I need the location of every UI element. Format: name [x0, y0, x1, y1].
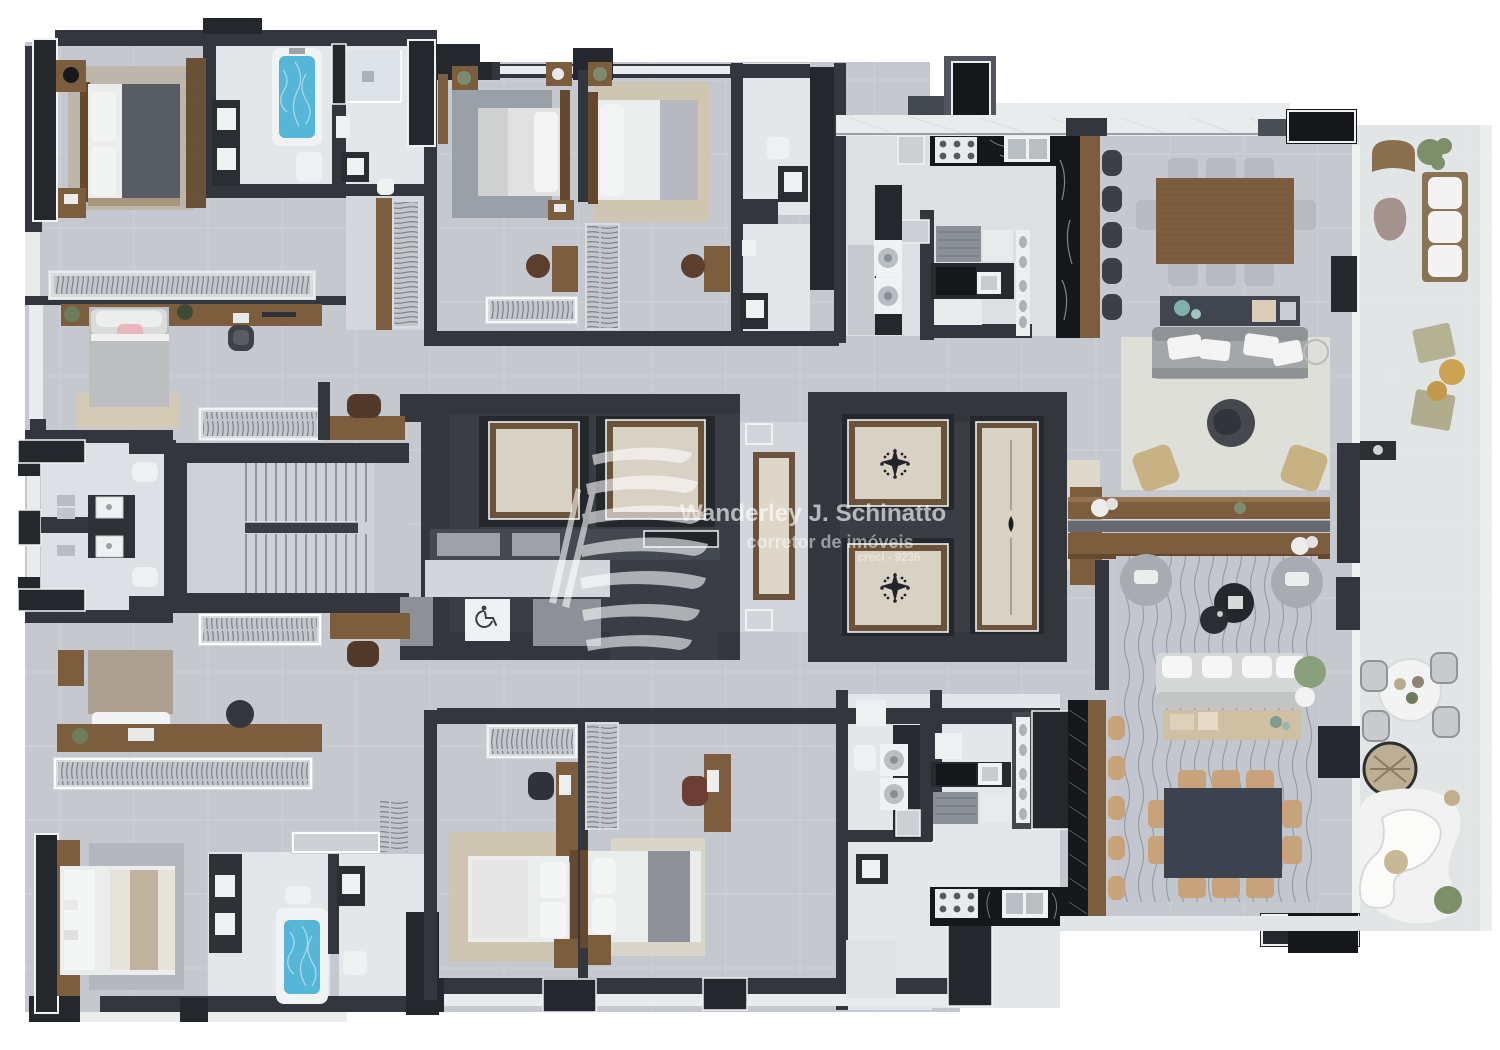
- svg-text:creci - 9236: creci - 9236: [858, 552, 921, 564]
- svg-text:Wanderley J. Schinatto: Wanderley J. Schinatto: [680, 500, 946, 527]
- svg-text:corretor de imóveis: corretor de imóveis: [746, 532, 913, 552]
